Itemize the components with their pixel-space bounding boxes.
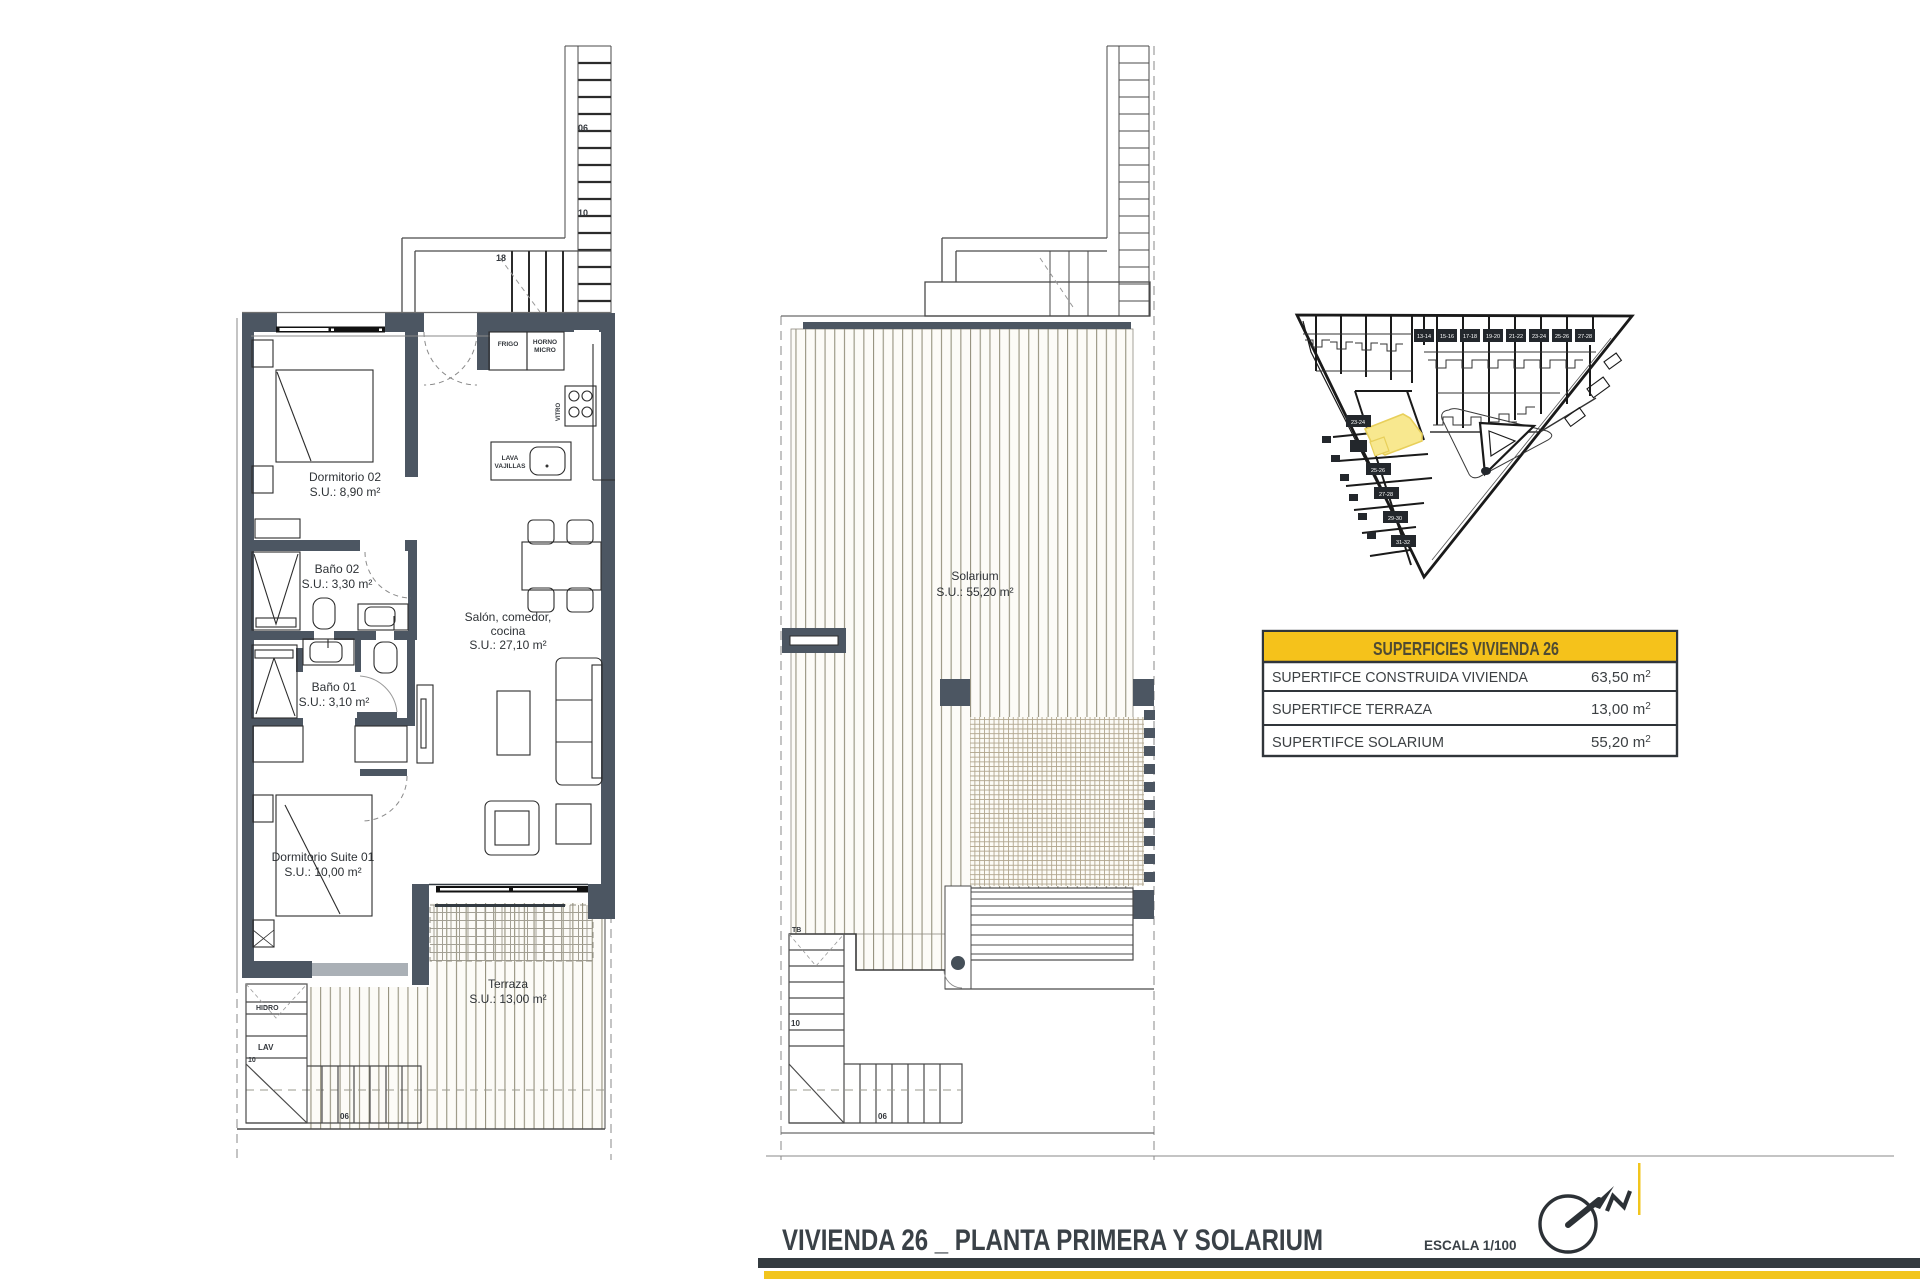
svg-text:25-26: 25-26 bbox=[1371, 468, 1385, 474]
svg-text:HIDRO: HIDRO bbox=[256, 1005, 279, 1012]
svg-text:18: 18 bbox=[496, 253, 506, 263]
svg-text:21-22: 21-22 bbox=[1509, 334, 1523, 340]
svg-text:Dormitorio Suite 01: Dormitorio Suite 01 bbox=[272, 850, 375, 864]
svg-text:LAVA: LAVA bbox=[502, 455, 519, 462]
svg-text:cocina: cocina bbox=[491, 624, 526, 638]
svg-text:S.U.: 27,10 m²: S.U.: 27,10 m² bbox=[469, 638, 546, 652]
svg-text:13-14: 13-14 bbox=[1417, 334, 1431, 340]
svg-text:S.U.: 10,00 m²: S.U.: 10,00 m² bbox=[284, 865, 361, 879]
svg-text:Baño 01: Baño 01 bbox=[312, 680, 357, 694]
svg-text:SUPERTIFCE CONSTRUIDA VIVIENDA: SUPERTIFCE CONSTRUIDA VIVIENDA bbox=[1272, 669, 1528, 686]
svg-text:29-30: 29-30 bbox=[1388, 516, 1402, 522]
svg-text:VAJILLAS: VAJILLAS bbox=[495, 463, 527, 470]
svg-text:TB: TB bbox=[792, 927, 801, 934]
svg-text:S.U.: 13,00 m²: S.U.: 13,00 m² bbox=[469, 992, 546, 1006]
svg-text:LAV: LAV bbox=[258, 1043, 274, 1052]
svg-text:Baño 02: Baño 02 bbox=[315, 562, 360, 576]
svg-text:55,20 m2: 55,20 m2 bbox=[1591, 734, 1651, 751]
svg-text:31-32: 31-32 bbox=[1396, 540, 1410, 546]
svg-text:SUPERFICIES VIVIENDA 26: SUPERFICIES VIVIENDA 26 bbox=[1373, 639, 1559, 659]
svg-text:ESCALA 1/100: ESCALA 1/100 bbox=[1424, 1238, 1517, 1253]
svg-text:19-20: 19-20 bbox=[1486, 334, 1500, 340]
svg-text:Terraza: Terraza bbox=[488, 977, 528, 991]
svg-text:27-28: 27-28 bbox=[1379, 492, 1393, 498]
svg-text:Solarium: Solarium bbox=[951, 569, 998, 583]
svg-text:SUPERTIFCE TERRAZA: SUPERTIFCE TERRAZA bbox=[1272, 701, 1432, 718]
svg-text:25-26: 25-26 bbox=[1555, 334, 1569, 340]
svg-text:06: 06 bbox=[578, 123, 588, 133]
svg-text:10: 10 bbox=[791, 1019, 800, 1028]
svg-text:63,50 m2: 63,50 m2 bbox=[1591, 669, 1651, 686]
svg-text:06: 06 bbox=[340, 1112, 349, 1121]
svg-text:13,00 m2: 13,00 m2 bbox=[1591, 701, 1651, 718]
svg-text:Dormitorio 02: Dormitorio 02 bbox=[309, 470, 381, 484]
svg-text:VITRO: VITRO bbox=[556, 403, 562, 422]
svg-text:06: 06 bbox=[878, 1112, 887, 1121]
svg-text:27-28: 27-28 bbox=[1578, 334, 1592, 340]
svg-text:VIVIENDA 26 _ PLANTA PRIMERA Y: VIVIENDA 26 _ PLANTA PRIMERA Y SOLARIUM bbox=[782, 1224, 1323, 1257]
svg-text:S.U.: 3,10 m²: S.U.: 3,10 m² bbox=[299, 695, 370, 709]
svg-text:FRIGO: FRIGO bbox=[498, 341, 519, 348]
svg-text:10: 10 bbox=[578, 208, 588, 218]
svg-text:15-16: 15-16 bbox=[1440, 334, 1454, 340]
svg-text:HORNO: HORNO bbox=[533, 339, 557, 346]
svg-text:S.U.: 3,30 m²: S.U.: 3,30 m² bbox=[302, 577, 373, 591]
svg-text:S.U.: 55,20 m²: S.U.: 55,20 m² bbox=[936, 585, 1013, 599]
svg-text:23-24: 23-24 bbox=[1532, 334, 1546, 340]
svg-text:SUPERTIFCE SOLARIUM: SUPERTIFCE SOLARIUM bbox=[1272, 734, 1444, 751]
svg-text:MICRO: MICRO bbox=[534, 347, 556, 354]
svg-text:23-24: 23-24 bbox=[1351, 420, 1365, 426]
svg-text:17-18: 17-18 bbox=[1463, 334, 1477, 340]
svg-text:10: 10 bbox=[248, 1057, 256, 1064]
svg-text:S.U.: 8,90 m²: S.U.: 8,90 m² bbox=[310, 485, 381, 499]
